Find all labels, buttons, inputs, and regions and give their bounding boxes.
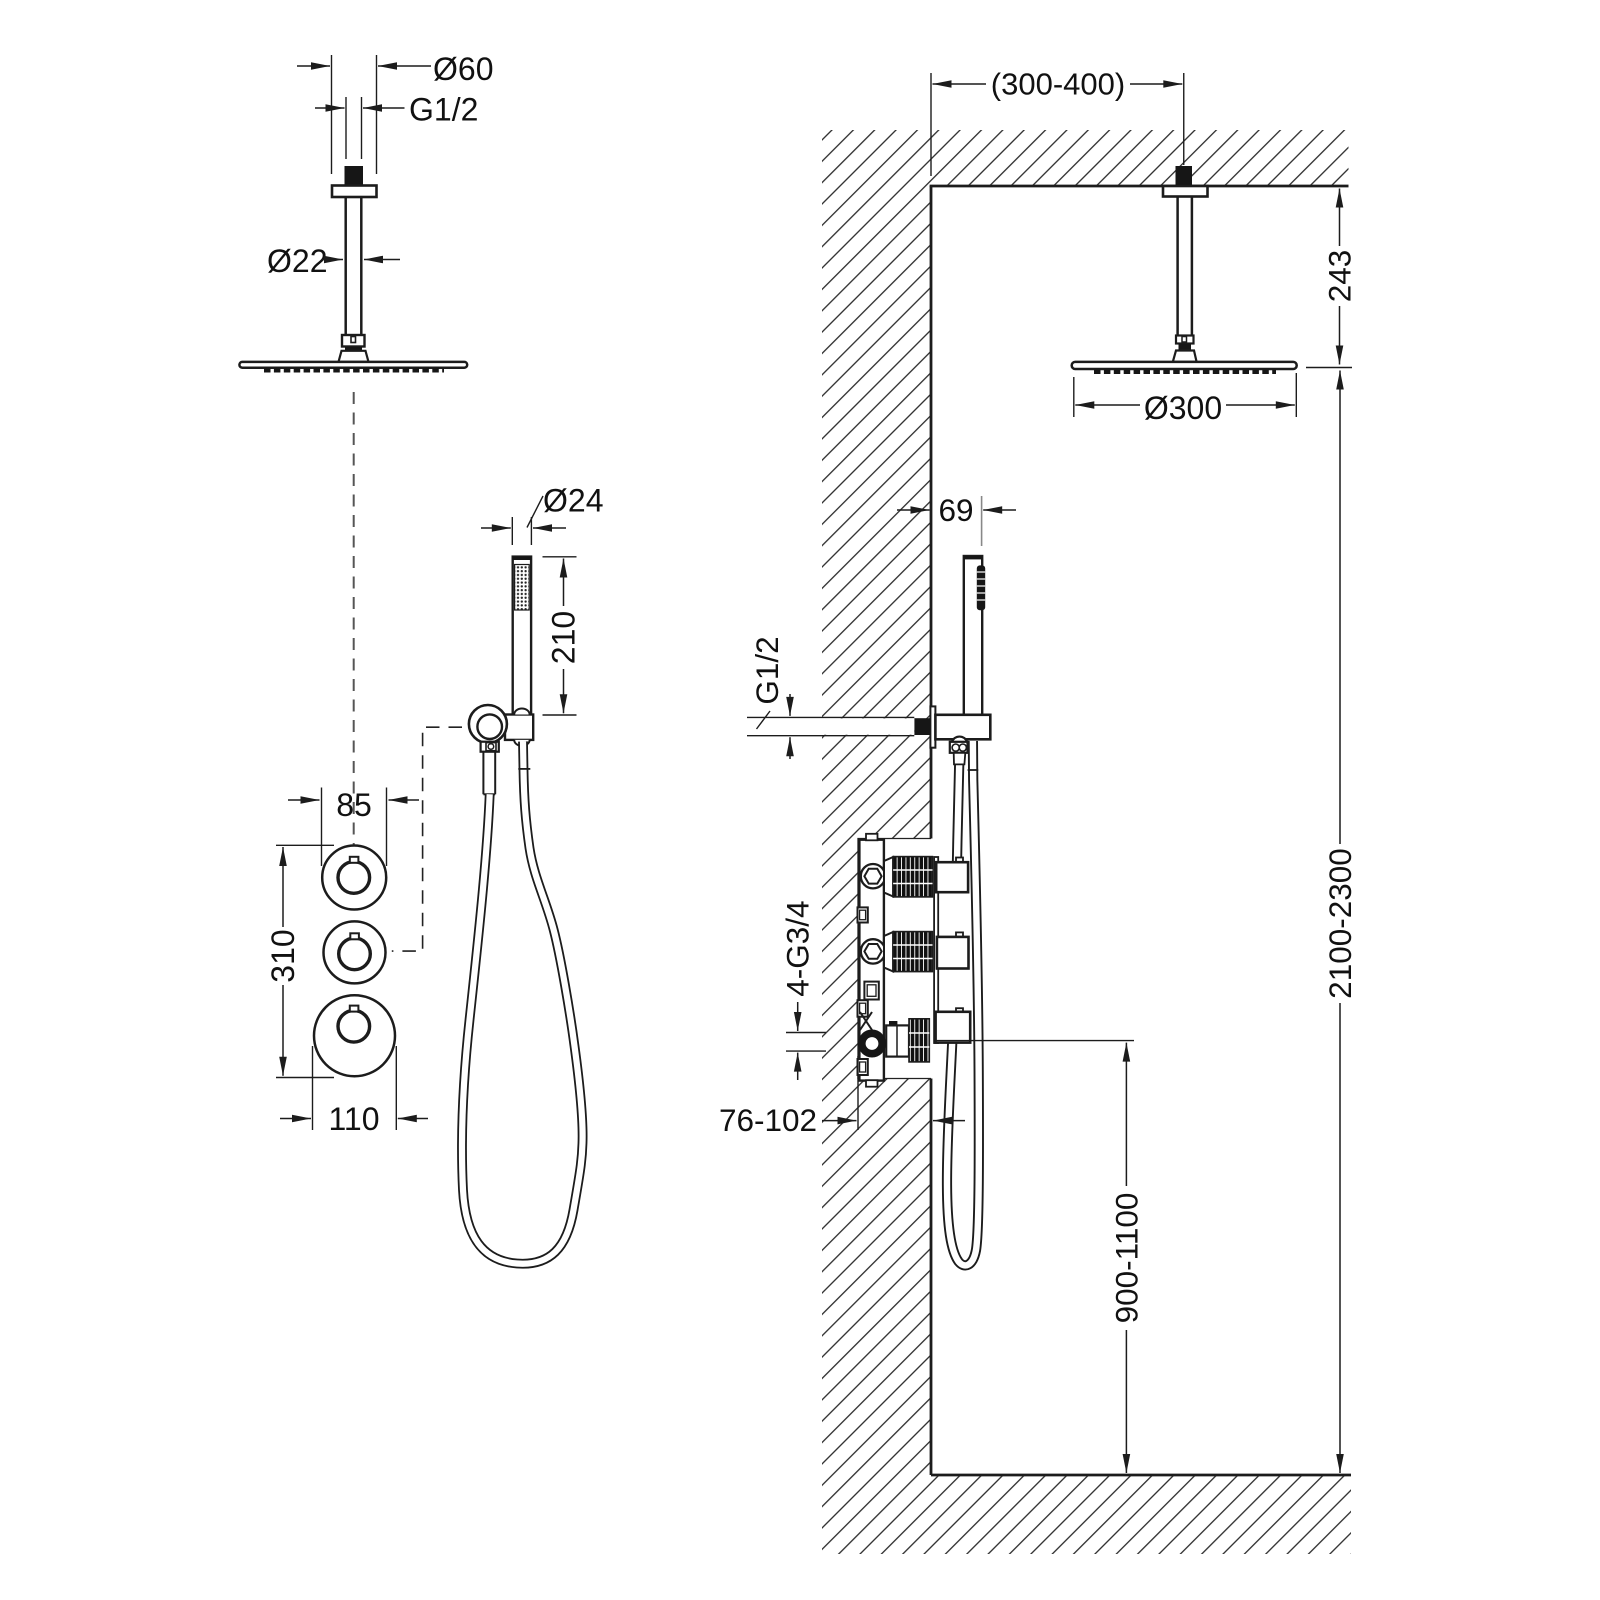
svg-text:69: 69 — [938, 492, 973, 528]
svg-text:2100-2300: 2100-2300 — [1322, 848, 1358, 999]
svg-text:Ø60: Ø60 — [433, 51, 493, 87]
svg-text:(300-400): (300-400) — [991, 67, 1125, 102]
svg-text:210: 210 — [546, 611, 582, 664]
svg-text:Ø24: Ø24 — [543, 483, 603, 519]
svg-text:85: 85 — [336, 787, 372, 823]
svg-text:Ø22: Ø22 — [267, 243, 327, 279]
svg-text:900-1100: 900-1100 — [1108, 1193, 1144, 1324]
svg-text:310: 310 — [265, 929, 301, 982]
svg-text:243: 243 — [1322, 250, 1358, 303]
svg-text:4-G3/4: 4-G3/4 — [780, 900, 816, 996]
svg-text:110: 110 — [328, 1101, 379, 1137]
svg-text:Ø300: Ø300 — [1144, 390, 1222, 426]
svg-text:G1/2: G1/2 — [749, 636, 785, 704]
svg-text:76-102: 76-102 — [719, 1102, 817, 1138]
svg-text:G1/2: G1/2 — [409, 92, 478, 128]
